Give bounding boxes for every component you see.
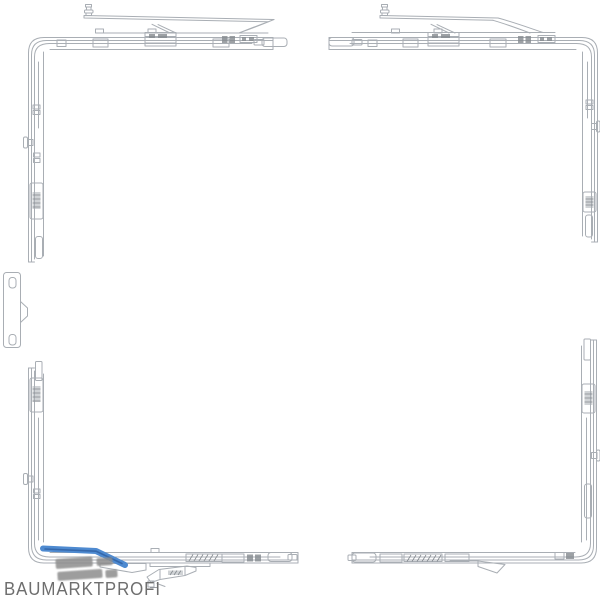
- corner-assembly-bottom-left: [24, 362, 299, 573]
- vertical-rail-hardware: [24, 105, 44, 259]
- slot-hole-icon: [9, 335, 16, 346]
- corner-assembly-bottom-right: [348, 339, 600, 573]
- scissor-stay: [84, 5, 274, 34]
- product-image: BAUMARKTPROFI: [0, 0, 600, 600]
- mushroom-cam-icon: [592, 450, 600, 461]
- watermark-text: BAUMARKTPROFI: [4, 579, 161, 599]
- hardware-line-drawing: BAUMARKTPROFI: [0, 0, 600, 600]
- corner-band: [29, 368, 299, 563]
- corner-band: [29, 38, 274, 263]
- scissor-stay: [380, 5, 543, 34]
- mushroom-cam-icon: [592, 121, 600, 132]
- rail-end-cap: [329, 38, 362, 47]
- corner-band: [352, 340, 597, 563]
- corner-assembly-top-left: [24, 5, 288, 263]
- corner-assembly-top-right: [329, 5, 600, 243]
- slot-hole-icon: [9, 278, 16, 289]
- rail-end-cap: [254, 38, 287, 47]
- vertical-rail-hardware: [24, 362, 44, 499]
- corner-band: [329, 38, 598, 243]
- strike-plate-left: [4, 273, 28, 348]
